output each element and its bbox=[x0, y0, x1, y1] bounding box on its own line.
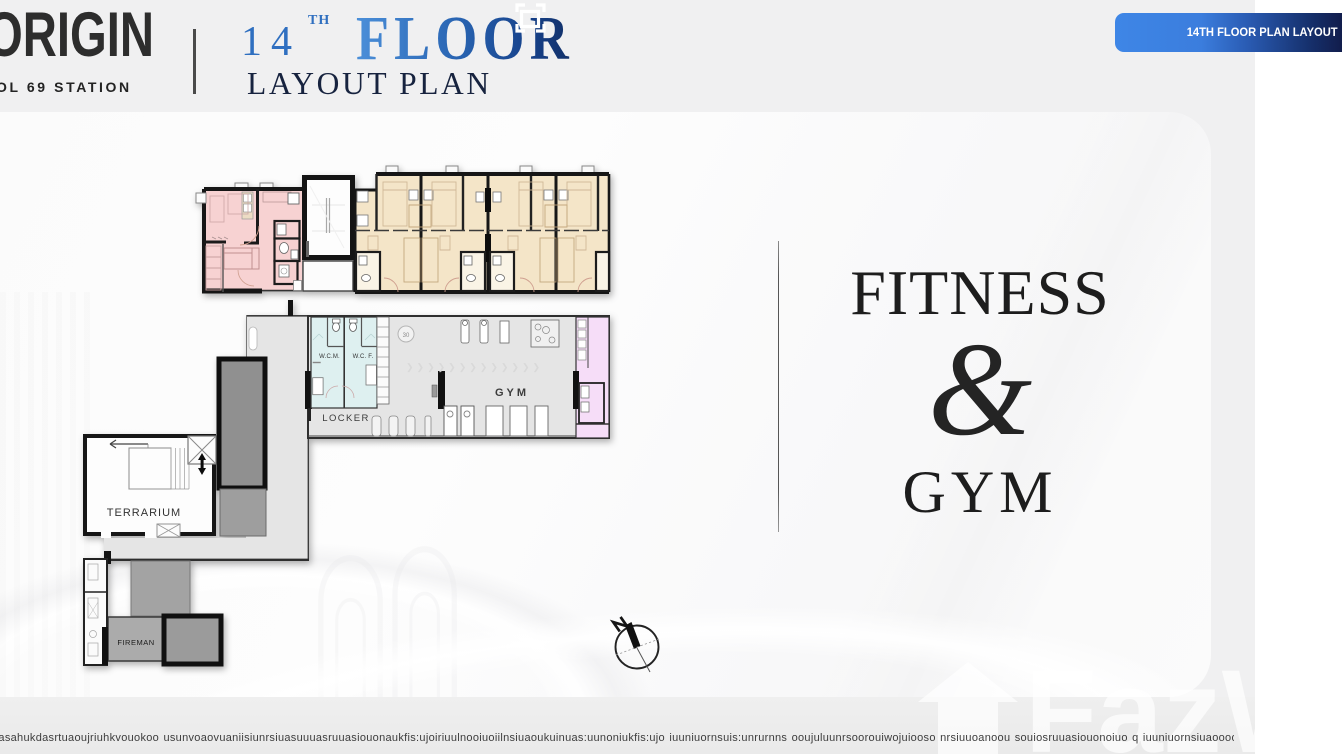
svg-text:TERRARIUM: TERRARIUM bbox=[107, 507, 181, 519]
svg-text:GYM: GYM bbox=[495, 387, 529, 399]
svg-text:LOCKER: LOCKER bbox=[322, 413, 369, 424]
svg-text:❯❯❯❯❯❯❯❯❯❯❯❯❯: ❯❯❯❯❯❯❯❯❯❯❯❯❯ bbox=[406, 362, 543, 373]
svg-text:W.C. F.: W.C. F. bbox=[353, 354, 374, 360]
svg-text:30: 30 bbox=[403, 333, 410, 339]
svg-text:W.C.M.: W.C.M. bbox=[319, 354, 340, 360]
svg-text:FIREMAN: FIREMAN bbox=[117, 638, 154, 647]
